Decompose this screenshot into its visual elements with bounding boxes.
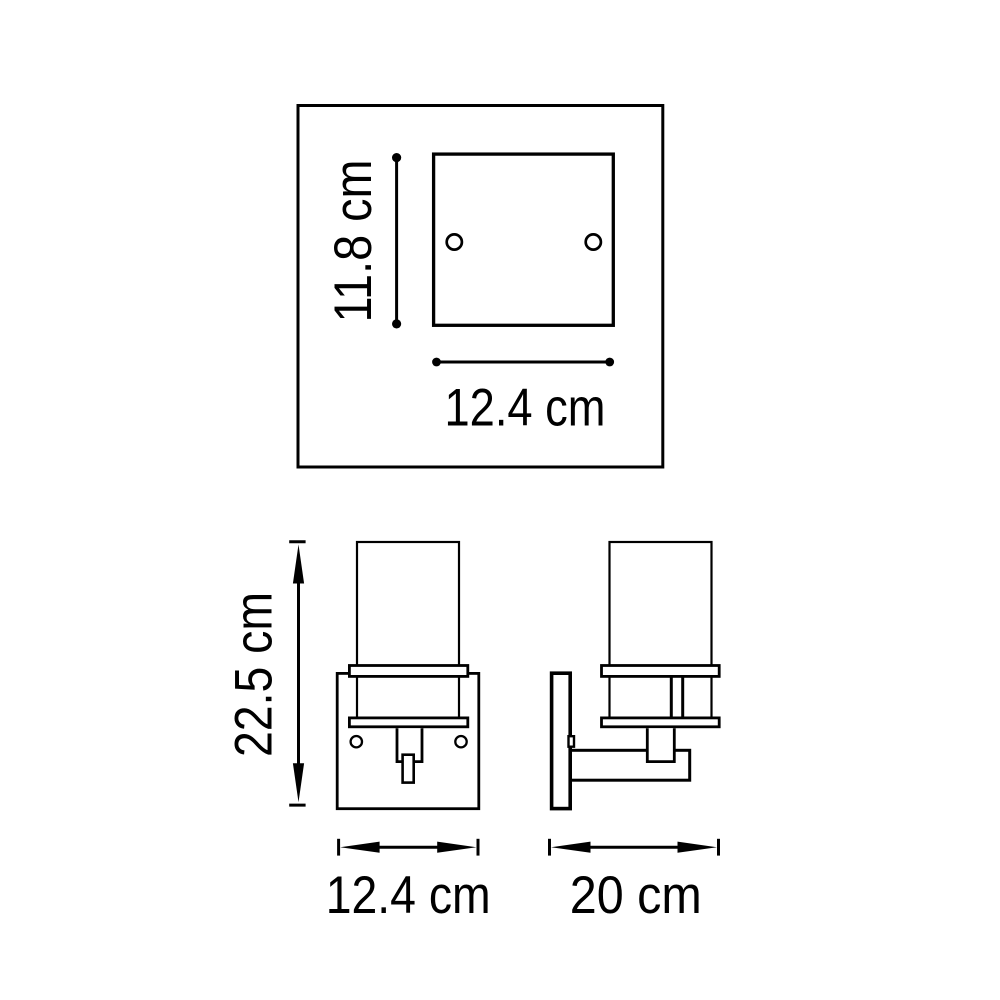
svg-text:12.4 cm: 12.4 cm — [326, 866, 491, 925]
svg-text:22.5 cm: 22.5 cm — [225, 592, 284, 757]
svg-text:20 cm: 20 cm — [570, 866, 702, 925]
svg-text:12.4 cm: 12.4 cm — [445, 378, 606, 437]
svg-text:11.8 cm: 11.8 cm — [324, 160, 383, 323]
